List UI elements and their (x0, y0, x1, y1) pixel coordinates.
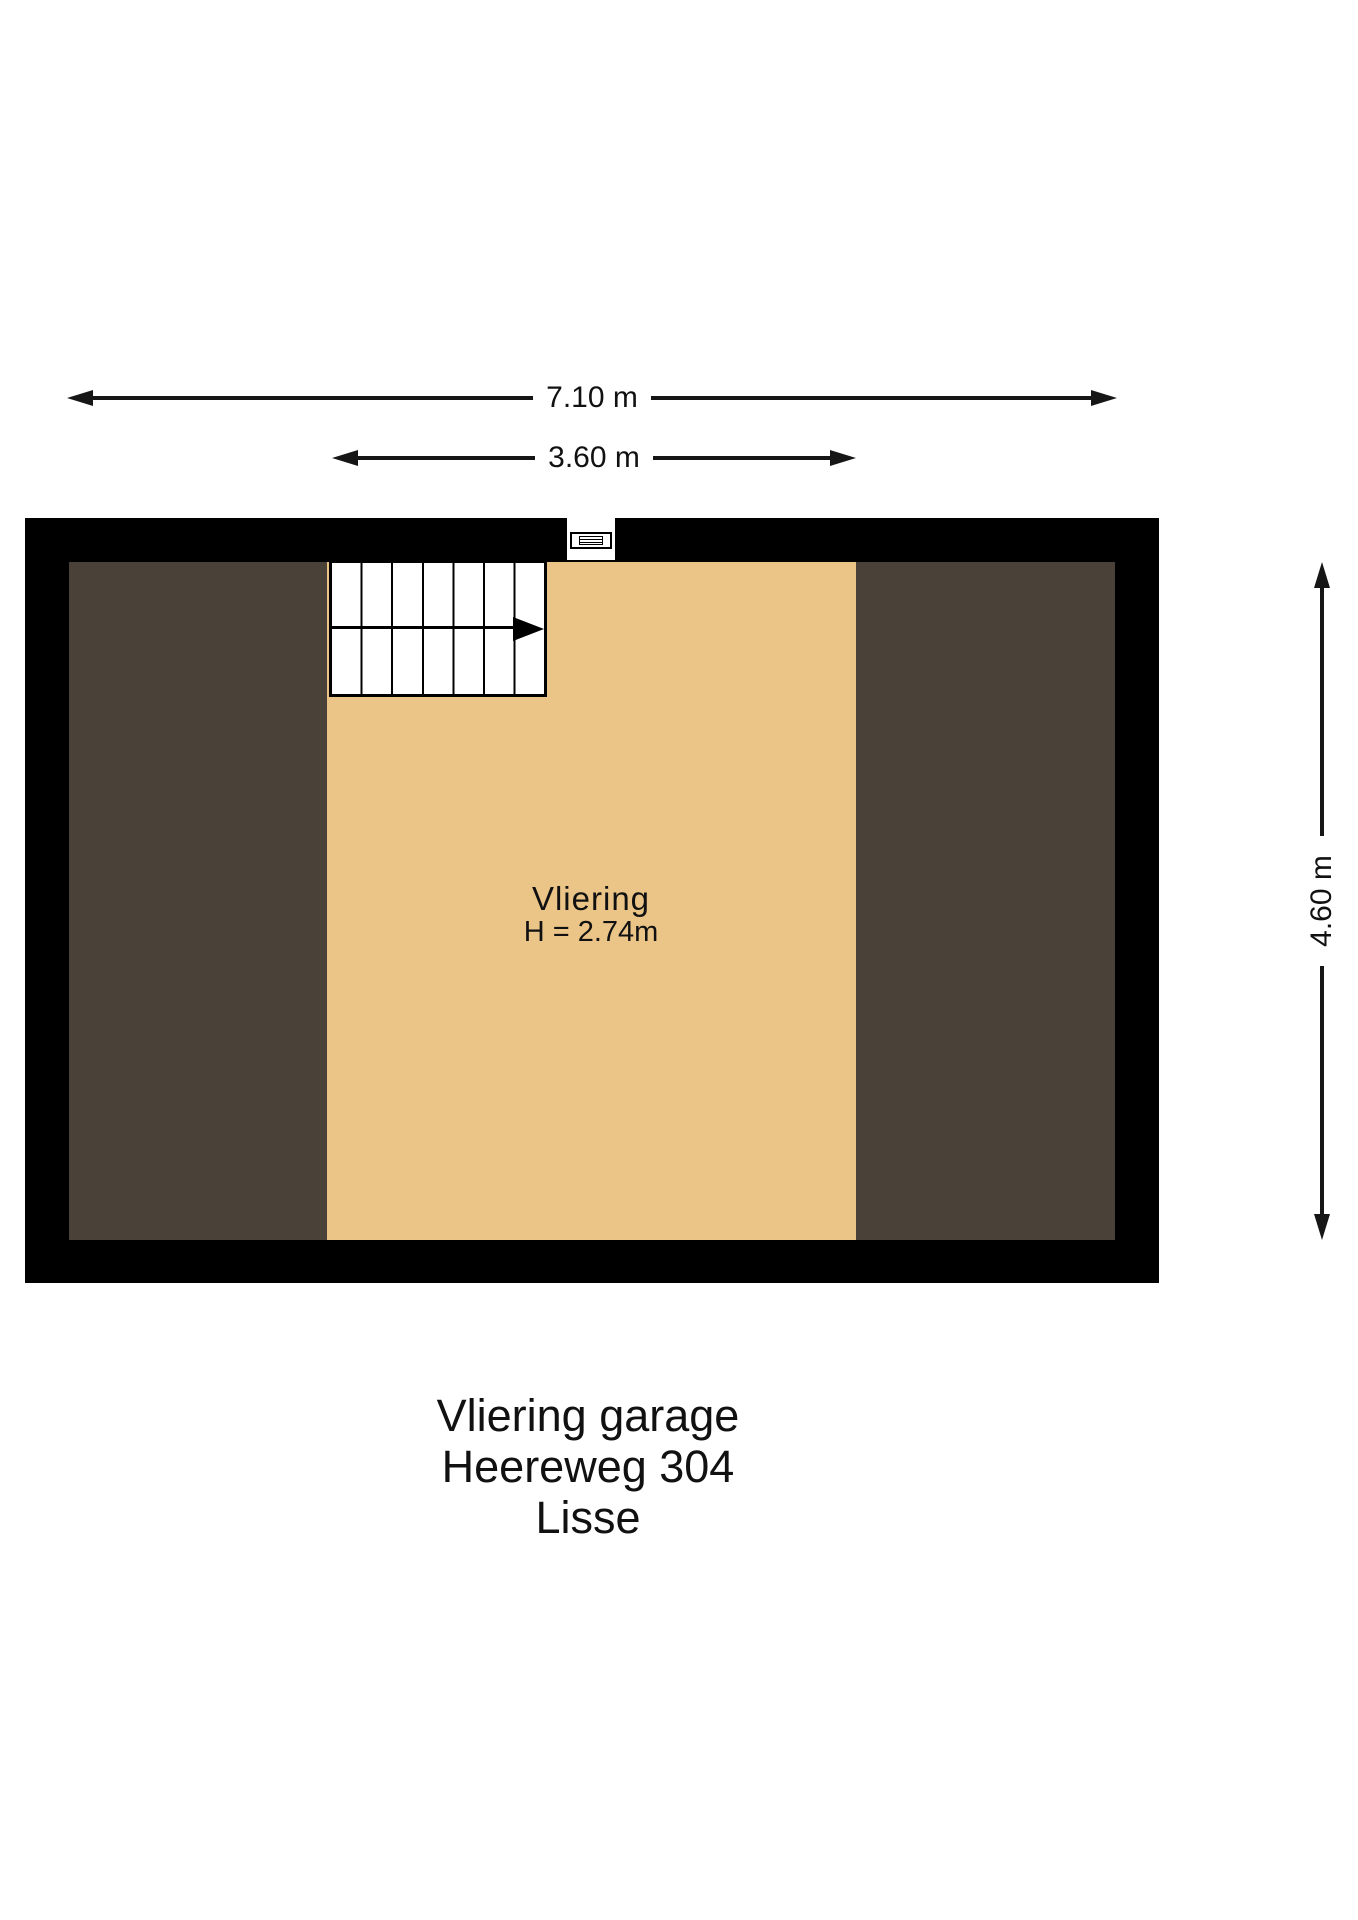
arrowhead-right-icon (1091, 390, 1117, 406)
dimension-vliering-width: 3.60 m (332, 443, 856, 473)
arrowhead-left-icon (67, 390, 93, 406)
dimension-total-width-label: 7.10 m (533, 383, 651, 413)
room-name: Vliering (376, 882, 806, 916)
floorplan-drawing: Vliering H = 2.74m (25, 518, 1159, 1283)
dimension-vliering-width-label: 3.60 m (535, 443, 653, 473)
arrowhead-down-icon (1314, 1214, 1330, 1240)
dimension-total-depth-label: 4.60 m (1276, 840, 1358, 962)
dimension-line (653, 456, 830, 460)
caption-line-street: Heereweg 304 (288, 1441, 888, 1492)
arrowhead-right-icon (830, 450, 856, 466)
stairs (329, 560, 547, 697)
dimension-line (1320, 588, 1324, 836)
floorplan-page: 7.10 m 3.60 m Vliering H = 2.74m (0, 0, 1358, 1920)
caption-line-city: Lisse (288, 1492, 888, 1543)
caption-line-title: Vliering garage (288, 1390, 888, 1441)
dimension-total-depth: 4.60 m (1306, 562, 1338, 1240)
arrowhead-left-icon (332, 450, 358, 466)
dimension-total-width: 7.10 m (67, 383, 1117, 413)
room-ceiling-height: H = 2.74m (376, 916, 806, 948)
dimension-line (1320, 966, 1324, 1214)
stairs-direction-arrow-icon (513, 617, 544, 641)
room-label: Vliering H = 2.74m (376, 882, 806, 948)
side-attic-floor-right (856, 562, 1115, 1240)
window-icon (570, 532, 612, 549)
dimension-line (93, 396, 533, 400)
side-attic-floor-left (69, 562, 327, 1240)
window-opening (567, 518, 615, 562)
window-louvers-icon (579, 536, 603, 545)
stairs-center-line (332, 626, 517, 629)
dimension-line (651, 396, 1091, 400)
caption: Vliering garage Heereweg 304 Lisse (288, 1390, 888, 1543)
arrowhead-up-icon (1314, 562, 1330, 588)
dimension-line (358, 456, 535, 460)
